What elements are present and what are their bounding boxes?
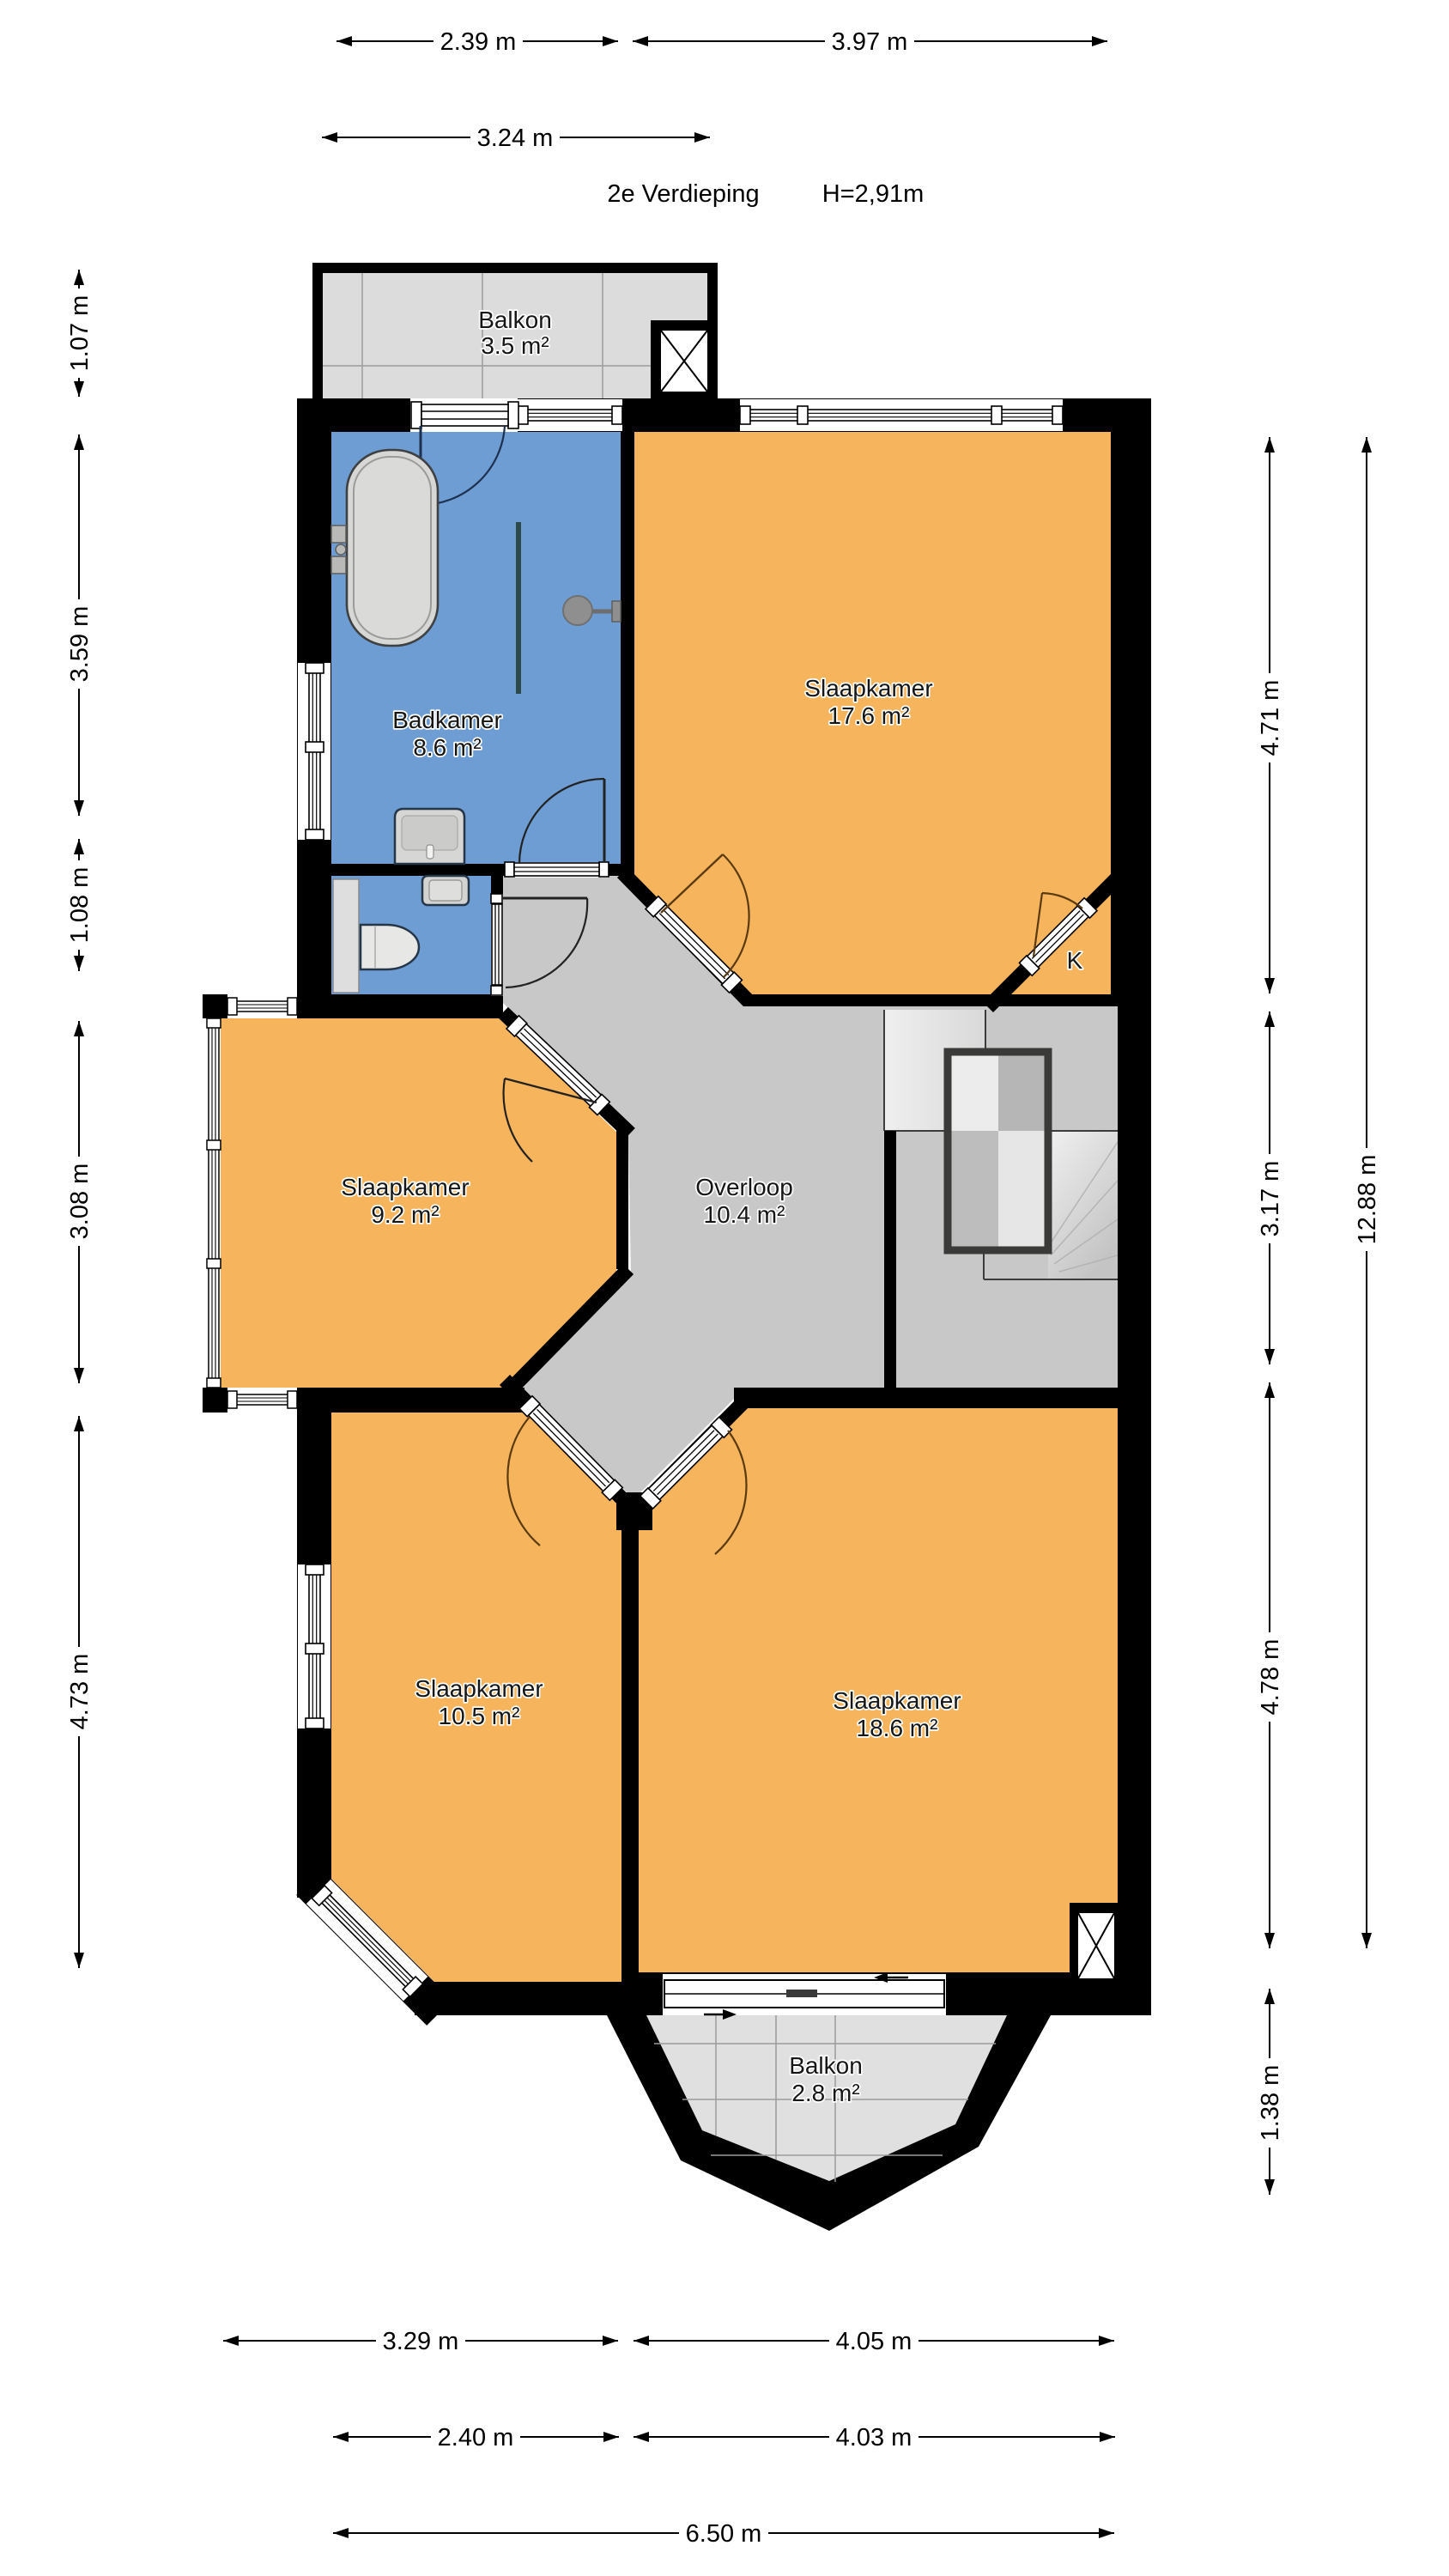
svg-text:Slaapkamer: Slaapkamer	[833, 1687, 961, 1714]
svg-text:2e Verdieping: 2e Verdieping	[607, 180, 759, 208]
svg-text:Balkon: Balkon	[478, 307, 552, 333]
svg-text:10.4 m²: 10.4 m²	[704, 1201, 785, 1228]
svg-text:Badkamer: Badkamer	[392, 707, 502, 733]
svg-text:Slaapkamer: Slaapkamer	[341, 1174, 469, 1200]
svg-text:17.6 m²: 17.6 m²	[828, 702, 910, 729]
svg-text:9.2 m²: 9.2 m²	[371, 1201, 439, 1228]
svg-text:4.03 m: 4.03 m	[836, 2424, 912, 2451]
svg-text:12.88 m: 12.88 m	[1354, 1155, 1381, 1245]
svg-text:6.50 m: 6.50 m	[686, 2520, 762, 2548]
svg-text:3.97 m: 3.97 m	[832, 28, 908, 56]
svg-text:8.6 m²: 8.6 m²	[413, 734, 481, 761]
svg-text:Slaapkamer: Slaapkamer	[415, 1675, 543, 1702]
svg-text:4.73 m: 4.73 m	[66, 1654, 94, 1730]
svg-text:3.5 m²: 3.5 m²	[481, 332, 549, 359]
svg-text:1.08 m: 1.08 m	[66, 867, 94, 944]
svg-text:2.8 m²: 2.8 m²	[791, 2080, 859, 2106]
svg-text:Balkon: Balkon	[789, 2052, 863, 2079]
svg-text:2.40 m: 2.40 m	[438, 2424, 514, 2451]
svg-text:3.08 m: 3.08 m	[66, 1163, 94, 1240]
svg-text:K: K	[1067, 947, 1083, 974]
svg-text:1.38 m: 1.38 m	[1257, 2065, 1284, 2142]
svg-text:Overloop: Overloop	[695, 1174, 793, 1200]
svg-text:3.29 m: 3.29 m	[383, 2328, 459, 2355]
svg-text:3.24 m: 3.24 m	[477, 125, 554, 152]
svg-text:3.59 m: 3.59 m	[66, 606, 94, 683]
svg-text:4.78 m: 4.78 m	[1257, 1639, 1284, 1716]
svg-text:3.17 m: 3.17 m	[1257, 1161, 1284, 1237]
svg-text:18.6 m²: 18.6 m²	[857, 1715, 938, 1741]
svg-text:4.05 m: 4.05 m	[836, 2328, 912, 2355]
svg-text:10.5 m²: 10.5 m²	[439, 1703, 520, 1729]
svg-text:4.71 m: 4.71 m	[1257, 680, 1284, 756]
svg-text:2.39 m: 2.39 m	[440, 28, 517, 56]
svg-text:1.07 m: 1.07 m	[66, 295, 94, 372]
svg-text:H=2,91m: H=2,91m	[822, 180, 924, 208]
svg-text:Slaapkamer: Slaapkamer	[804, 675, 932, 702]
